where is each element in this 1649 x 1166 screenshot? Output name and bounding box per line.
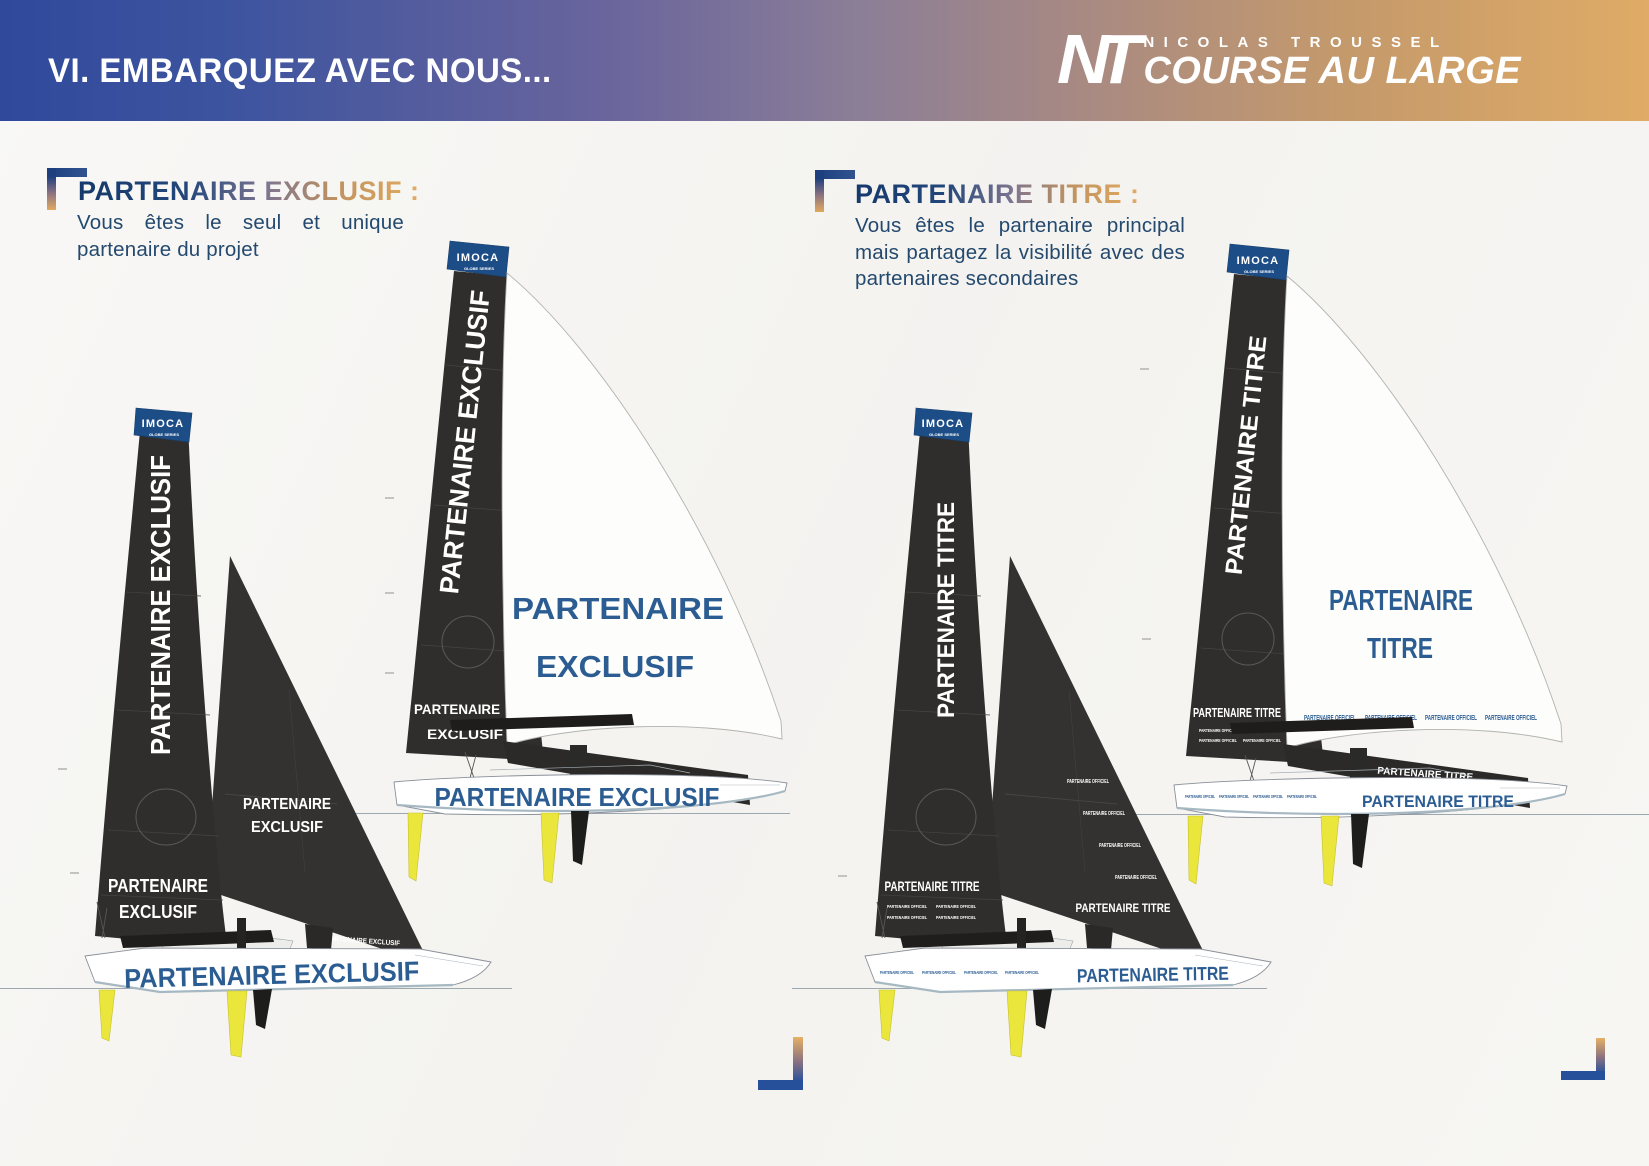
gennaker-brand-line1: PARTENAIRE xyxy=(512,591,724,626)
corner-bracket-titre xyxy=(815,170,855,212)
gennaker-secondary: PARTENAIRE OFFICIEL xyxy=(1425,715,1477,722)
imoca-series-label: GLOBE SERIES xyxy=(464,266,494,271)
keel-and-foils xyxy=(408,811,589,883)
measure-mark xyxy=(58,768,67,770)
measure-mark xyxy=(1140,368,1149,370)
hull-secondary: PARTENAIRE OFFICIEL xyxy=(922,970,956,975)
mainsail-secondary: PARTENAIRE OFFICIEL xyxy=(936,915,976,920)
bracket-arm xyxy=(47,168,56,210)
boat-exclusif-side: IMOCA GLOBE SERIES PARTENAIRE EXCLUSIF P… xyxy=(390,225,790,885)
gennaker-brand-line1: PARTENAIRE xyxy=(1329,585,1473,617)
keel-and-foils xyxy=(99,989,272,1057)
mainsail-secondary: PARTENAIRE OFFICIEL xyxy=(1199,738,1237,743)
jib-brand-line1: PARTENAIRE xyxy=(243,796,331,813)
section-desc-titre: Vous êtes le partenaire principal mais p… xyxy=(855,213,1185,293)
imoca-label: IMOCA xyxy=(457,252,500,264)
mainsail-secondary: PARTENAIRE OFFICIEL xyxy=(1243,738,1281,743)
jib-secondary: PARTENAIRE OFFICIEL xyxy=(1083,811,1125,817)
mainsail-secondary: PARTENAIRE OFFICIEL xyxy=(936,904,976,909)
hull-brand: PARTENAIRE TITRE xyxy=(1362,792,1514,811)
gennaker-secondary: PARTENAIRE OFFICIEL xyxy=(1485,715,1537,722)
mainsail-vertical-brand: PARTENAIRE TITRE xyxy=(933,502,960,718)
hull-secondary: PARTENAIRE OFFICIEL xyxy=(1185,794,1215,799)
corner-bracket-bottom-exclusif xyxy=(758,1037,803,1090)
hull-secondary: PARTENAIRE OFFICIEL xyxy=(1287,794,1317,799)
jib-secondary: PARTENAIRE OFFICIEL xyxy=(1067,779,1109,785)
hull-secondary: PARTENAIRE OFFICIEL xyxy=(1253,794,1283,799)
hull-brand: PARTENAIRE EXCLUSIF xyxy=(435,782,720,812)
jib-brand: PARTENAIRE TITRE xyxy=(1076,901,1171,915)
nt-course-au-large-logo: NT NICOLAS TROUSSEL COURSE AU LARGE xyxy=(1061,28,1521,91)
header-band: VI. EMBARQUEZ AVEC NOUS... NT NICOLAS TR… xyxy=(0,0,1649,121)
section-title-titre: PARTENAIRE TITRE : xyxy=(855,179,1140,210)
mainsail-vertical-brand: PARTENAIRE EXCLUSIF xyxy=(145,455,176,755)
jib-secondary: PARTENAIRE OFFICIEL xyxy=(1115,875,1157,881)
page-title: VI. EMBARQUEZ AVEC NOUS... xyxy=(48,52,552,91)
imoca-series-label: GLOBE SERIES xyxy=(929,432,959,437)
mainsail-brand-line2: EXCLUSIF xyxy=(119,902,197,922)
gennaker-brand-line2: EXCLUSIF xyxy=(536,649,694,684)
mainsail-brand-line1: PARTENAIRE xyxy=(108,876,208,896)
bracket-arm xyxy=(815,170,824,212)
boat-titre-side: IMOCA GLOBE SERIES PARTENAIRE TITRE PART… xyxy=(1170,228,1570,888)
bracket-arm xyxy=(1561,1071,1605,1080)
hull-brand: PARTENAIRE TITRE xyxy=(1077,964,1229,988)
mainsail-brand: PARTENAIRE TITRE xyxy=(885,878,980,894)
hull-secondary: PARTENAIRE OFFICIEL xyxy=(1005,970,1039,975)
mainsail-secondary: PARTENAIRE OFFICIEL xyxy=(887,915,927,920)
imoca-label: IMOCA xyxy=(922,418,965,430)
imoca-label: IMOCA xyxy=(1237,255,1280,267)
mainsail-brand-line1: PARTENAIRE xyxy=(414,701,500,717)
bracket-arm xyxy=(758,1080,803,1090)
imoca-series-label: GLOBE SERIES xyxy=(1244,269,1274,274)
logo-text-block: NICOLAS TROUSSEL COURSE AU LARGE xyxy=(1143,28,1521,91)
keel-and-foils xyxy=(879,989,1052,1057)
hull-secondary: PARTENAIRE OFFICIEL xyxy=(964,970,998,975)
keel-and-foils xyxy=(1188,814,1369,886)
gennaker-brand-line2: TITRE xyxy=(1367,633,1433,665)
section-title-exclusif: PARTENAIRE EXCLUSIF : xyxy=(78,176,420,207)
logo-name: NICOLAS TROUSSEL xyxy=(1143,34,1448,51)
imoca-label: IMOCA xyxy=(142,418,185,430)
hull-secondary: PARTENAIRE OFFICIEL xyxy=(880,970,914,975)
nt-monogram-icon: NT xyxy=(1057,28,1143,90)
hull-brand: PARTENAIRE EXCLUSIF xyxy=(124,956,420,994)
hull-secondary: PARTENAIRE OFFICIEL xyxy=(1219,794,1249,799)
jib-brand-line2: EXCLUSIF xyxy=(251,819,323,836)
logo-tagline: COURSE AU LARGE xyxy=(1143,51,1521,91)
measure-mark xyxy=(838,875,847,877)
imoca-series-label: GLOBE SERIES xyxy=(149,432,179,437)
mainsail-brand: PARTENAIRE TITRE xyxy=(1193,705,1281,720)
mainsail-secondary: PARTENAIRE OFFICIEL xyxy=(887,904,927,909)
section-desc-exclusif: Vous êtes le seul et unique partenaire d… xyxy=(77,210,404,263)
slide-page: VI. EMBARQUEZ AVEC NOUS... NT NICOLAS TR… xyxy=(0,0,1649,1166)
corner-bracket-bottom-titre xyxy=(1561,1038,1605,1080)
gennaker-sail xyxy=(1282,276,1562,748)
jib-secondary: PARTENAIRE OFFICIEL xyxy=(1099,843,1141,849)
